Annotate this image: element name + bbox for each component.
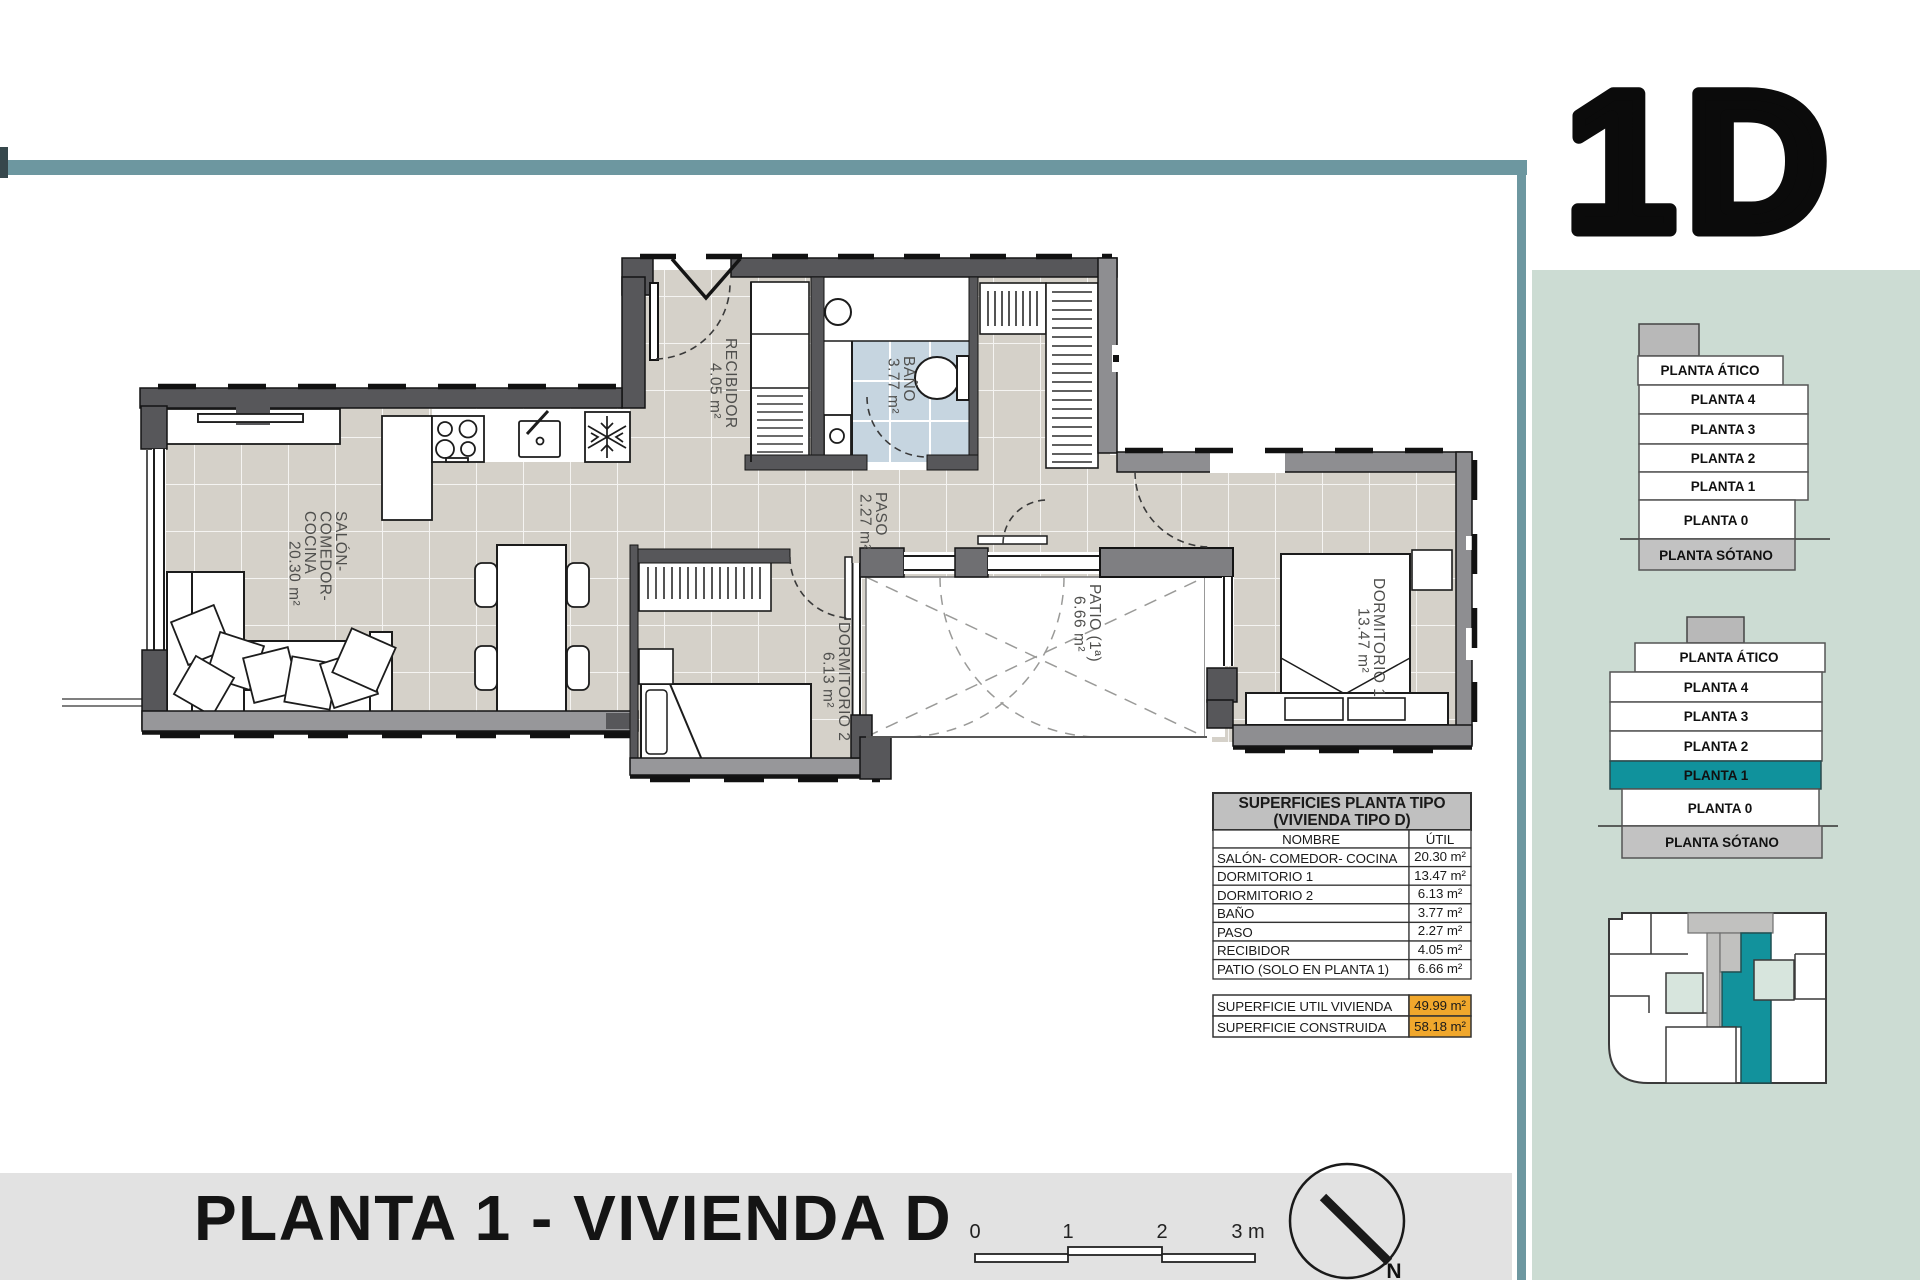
svg-text:PLANTA 3: PLANTA 3 xyxy=(1684,709,1749,724)
svg-text:1D: 1D xyxy=(1565,51,1838,272)
svg-text:RECIBIDOR: RECIBIDOR xyxy=(722,338,739,429)
svg-text:BAÑO: BAÑO xyxy=(900,356,917,402)
svg-text:PLANTA SÓTANO: PLANTA SÓTANO xyxy=(1659,548,1773,563)
svg-text:NOMBRE: NOMBRE xyxy=(1282,832,1340,847)
svg-text:PATIO (1ª): PATIO (1ª) xyxy=(1086,584,1103,662)
svg-text:49.99 m²: 49.99 m² xyxy=(1414,998,1466,1013)
svg-text:PLANTA 1: PLANTA 1 xyxy=(1691,479,1756,494)
svg-text:DORMITORIO 1: DORMITORIO 1 xyxy=(1370,578,1387,697)
svg-text:PLANTA 4: PLANTA 4 xyxy=(1684,680,1749,695)
svg-text:PLANTA ÁTICO: PLANTA ÁTICO xyxy=(1661,363,1760,378)
svg-text:PLANTA 4: PLANTA 4 xyxy=(1691,392,1756,407)
svg-text:6.13 m²: 6.13 m² xyxy=(1418,886,1463,901)
svg-text:PLANTA ÁTICO: PLANTA ÁTICO xyxy=(1680,650,1779,665)
svg-text:SALÓN-: SALÓN- xyxy=(332,511,349,572)
svg-text:3.77 m²: 3.77 m² xyxy=(1418,905,1463,920)
svg-text:(VIVIENDA TIPO D): (VIVIENDA TIPO D) xyxy=(1273,812,1410,829)
svg-text:COMEDOR-: COMEDOR- xyxy=(317,511,334,601)
svg-text:13.47 m²: 13.47 m² xyxy=(1355,608,1372,673)
svg-text:SUPERFICIE UTIL VIVIENDA: SUPERFICIE UTIL VIVIENDA xyxy=(1217,999,1392,1014)
svg-text:20.30 m²: 20.30 m² xyxy=(286,541,303,606)
svg-text:PLANTA 2: PLANTA 2 xyxy=(1691,451,1756,466)
svg-text:0: 0 xyxy=(969,1221,980,1243)
svg-text:13.47 m²: 13.47 m² xyxy=(1414,868,1466,883)
svg-text:3 m: 3 m xyxy=(1231,1221,1264,1243)
svg-text:2.27 m²: 2.27 m² xyxy=(1418,923,1463,938)
svg-text:4.05 m²: 4.05 m² xyxy=(707,363,724,419)
svg-text:PLANTA SÓTANO: PLANTA SÓTANO xyxy=(1665,835,1779,850)
svg-text:BAÑO: BAÑO xyxy=(1217,906,1254,921)
svg-text:PLANTA 1: PLANTA 1 xyxy=(1684,768,1749,783)
svg-text:COCINA: COCINA xyxy=(301,511,318,574)
svg-text:ÚTIL: ÚTIL xyxy=(1426,832,1454,847)
svg-text:4.05 m²: 4.05 m² xyxy=(1418,942,1463,957)
svg-text:DORMITORIO 1: DORMITORIO 1 xyxy=(1217,869,1313,884)
svg-text:RECIBIDOR: RECIBIDOR xyxy=(1217,943,1290,958)
svg-text:6.66 m²: 6.66 m² xyxy=(1071,596,1088,652)
svg-text:PLANTA 0: PLANTA 0 xyxy=(1688,801,1753,816)
svg-text:PLANTA 2: PLANTA 2 xyxy=(1684,739,1749,754)
svg-text:PLANTA 3: PLANTA 3 xyxy=(1691,422,1756,437)
svg-text:6.13 m²: 6.13 m² xyxy=(820,652,837,708)
svg-text:DORMITORIO 2: DORMITORIO 2 xyxy=(835,622,852,741)
svg-text:PLANTA 0: PLANTA 0 xyxy=(1684,513,1749,528)
svg-text:3.77 m²: 3.77 m² xyxy=(885,358,902,414)
svg-text:58.18 m²: 58.18 m² xyxy=(1414,1019,1466,1034)
svg-text:1: 1 xyxy=(1062,1221,1073,1243)
svg-text:PLANTA 1 - VIVIENDA D: PLANTA 1 - VIVIENDA D xyxy=(194,1182,952,1254)
svg-text:SALÓN- COMEDOR- COCINA: SALÓN- COMEDOR- COCINA xyxy=(1217,851,1398,866)
svg-text:2.27 m²: 2.27 m² xyxy=(857,494,874,550)
svg-text:2: 2 xyxy=(1156,1221,1167,1243)
svg-text:SUPERFICIE CONSTRUIDA: SUPERFICIE CONSTRUIDA xyxy=(1217,1020,1387,1035)
svg-text:N: N xyxy=(1386,1260,1401,1280)
svg-text:6.66 m²: 6.66 m² xyxy=(1418,961,1463,976)
svg-text:20.30 m²: 20.30 m² xyxy=(1414,849,1466,864)
svg-text:DORMITORIO 2: DORMITORIO 2 xyxy=(1217,888,1313,903)
svg-text:PATIO (SOLO EN PLANTA 1): PATIO (SOLO EN PLANTA 1) xyxy=(1217,962,1389,977)
svg-text:PASO: PASO xyxy=(872,492,889,536)
svg-text:SUPERFICIES PLANTA TIPO: SUPERFICIES PLANTA TIPO xyxy=(1239,795,1446,812)
svg-text:PASO: PASO xyxy=(1217,925,1253,940)
